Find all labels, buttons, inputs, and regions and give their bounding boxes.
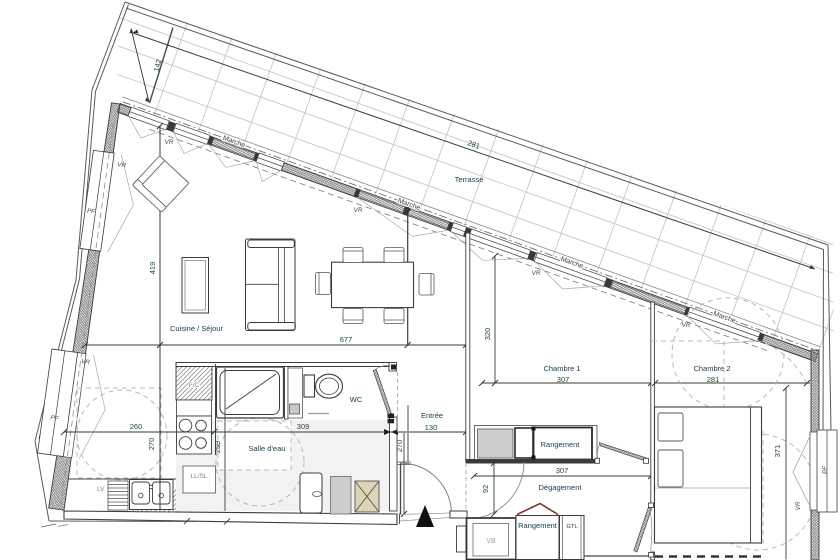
- svg-text:Terrasse: Terrasse: [455, 175, 484, 184]
- svg-text:PF: PF: [822, 465, 829, 474]
- svg-text:VR: VR: [165, 139, 174, 146]
- svg-text:677: 677: [340, 335, 353, 344]
- svg-text:Chambre 1: Chambre 1: [543, 364, 580, 373]
- svg-text:VR: VR: [532, 270, 541, 277]
- svg-text:419: 419: [148, 262, 157, 275]
- svg-text:WC: WC: [350, 395, 363, 404]
- svg-text:Entrée: Entrée: [421, 411, 443, 420]
- svg-text:LL/SL: LL/SL: [191, 473, 208, 480]
- svg-text:Rangement: Rangement: [541, 440, 581, 449]
- svg-text:VR: VR: [117, 161, 127, 169]
- svg-text:VR: VR: [682, 322, 691, 329]
- svg-text:309: 309: [297, 422, 310, 431]
- svg-text:259: 259: [213, 441, 222, 454]
- svg-text:Cuisine / Séjour: Cuisine / Séjour: [170, 324, 223, 333]
- svg-text:LV: LV: [97, 486, 105, 493]
- svg-text:Salle d'eau: Salle d'eau: [249, 444, 286, 453]
- svg-text:270: 270: [147, 438, 156, 451]
- svg-text:320: 320: [483, 328, 492, 341]
- svg-text:270: 270: [395, 440, 404, 453]
- svg-text:Dégagement: Dégagement: [539, 483, 583, 492]
- svg-text:92: 92: [481, 485, 490, 493]
- svg-text:307: 307: [556, 466, 569, 475]
- svg-text:VR: VR: [81, 358, 91, 366]
- svg-text:VR: VR: [795, 501, 802, 510]
- svg-text:130: 130: [425, 423, 438, 432]
- svg-text:GTL: GTL: [566, 524, 578, 530]
- svg-text:260: 260: [130, 422, 143, 431]
- svg-text:VR: VR: [354, 207, 363, 214]
- svg-text:Rangement: Rangement: [518, 521, 558, 530]
- svg-text:VB: VB: [486, 538, 496, 545]
- svg-text:371: 371: [773, 445, 782, 458]
- svg-text:F/C: F/C: [189, 382, 200, 389]
- svg-text:Chambre 2: Chambre 2: [693, 364, 730, 373]
